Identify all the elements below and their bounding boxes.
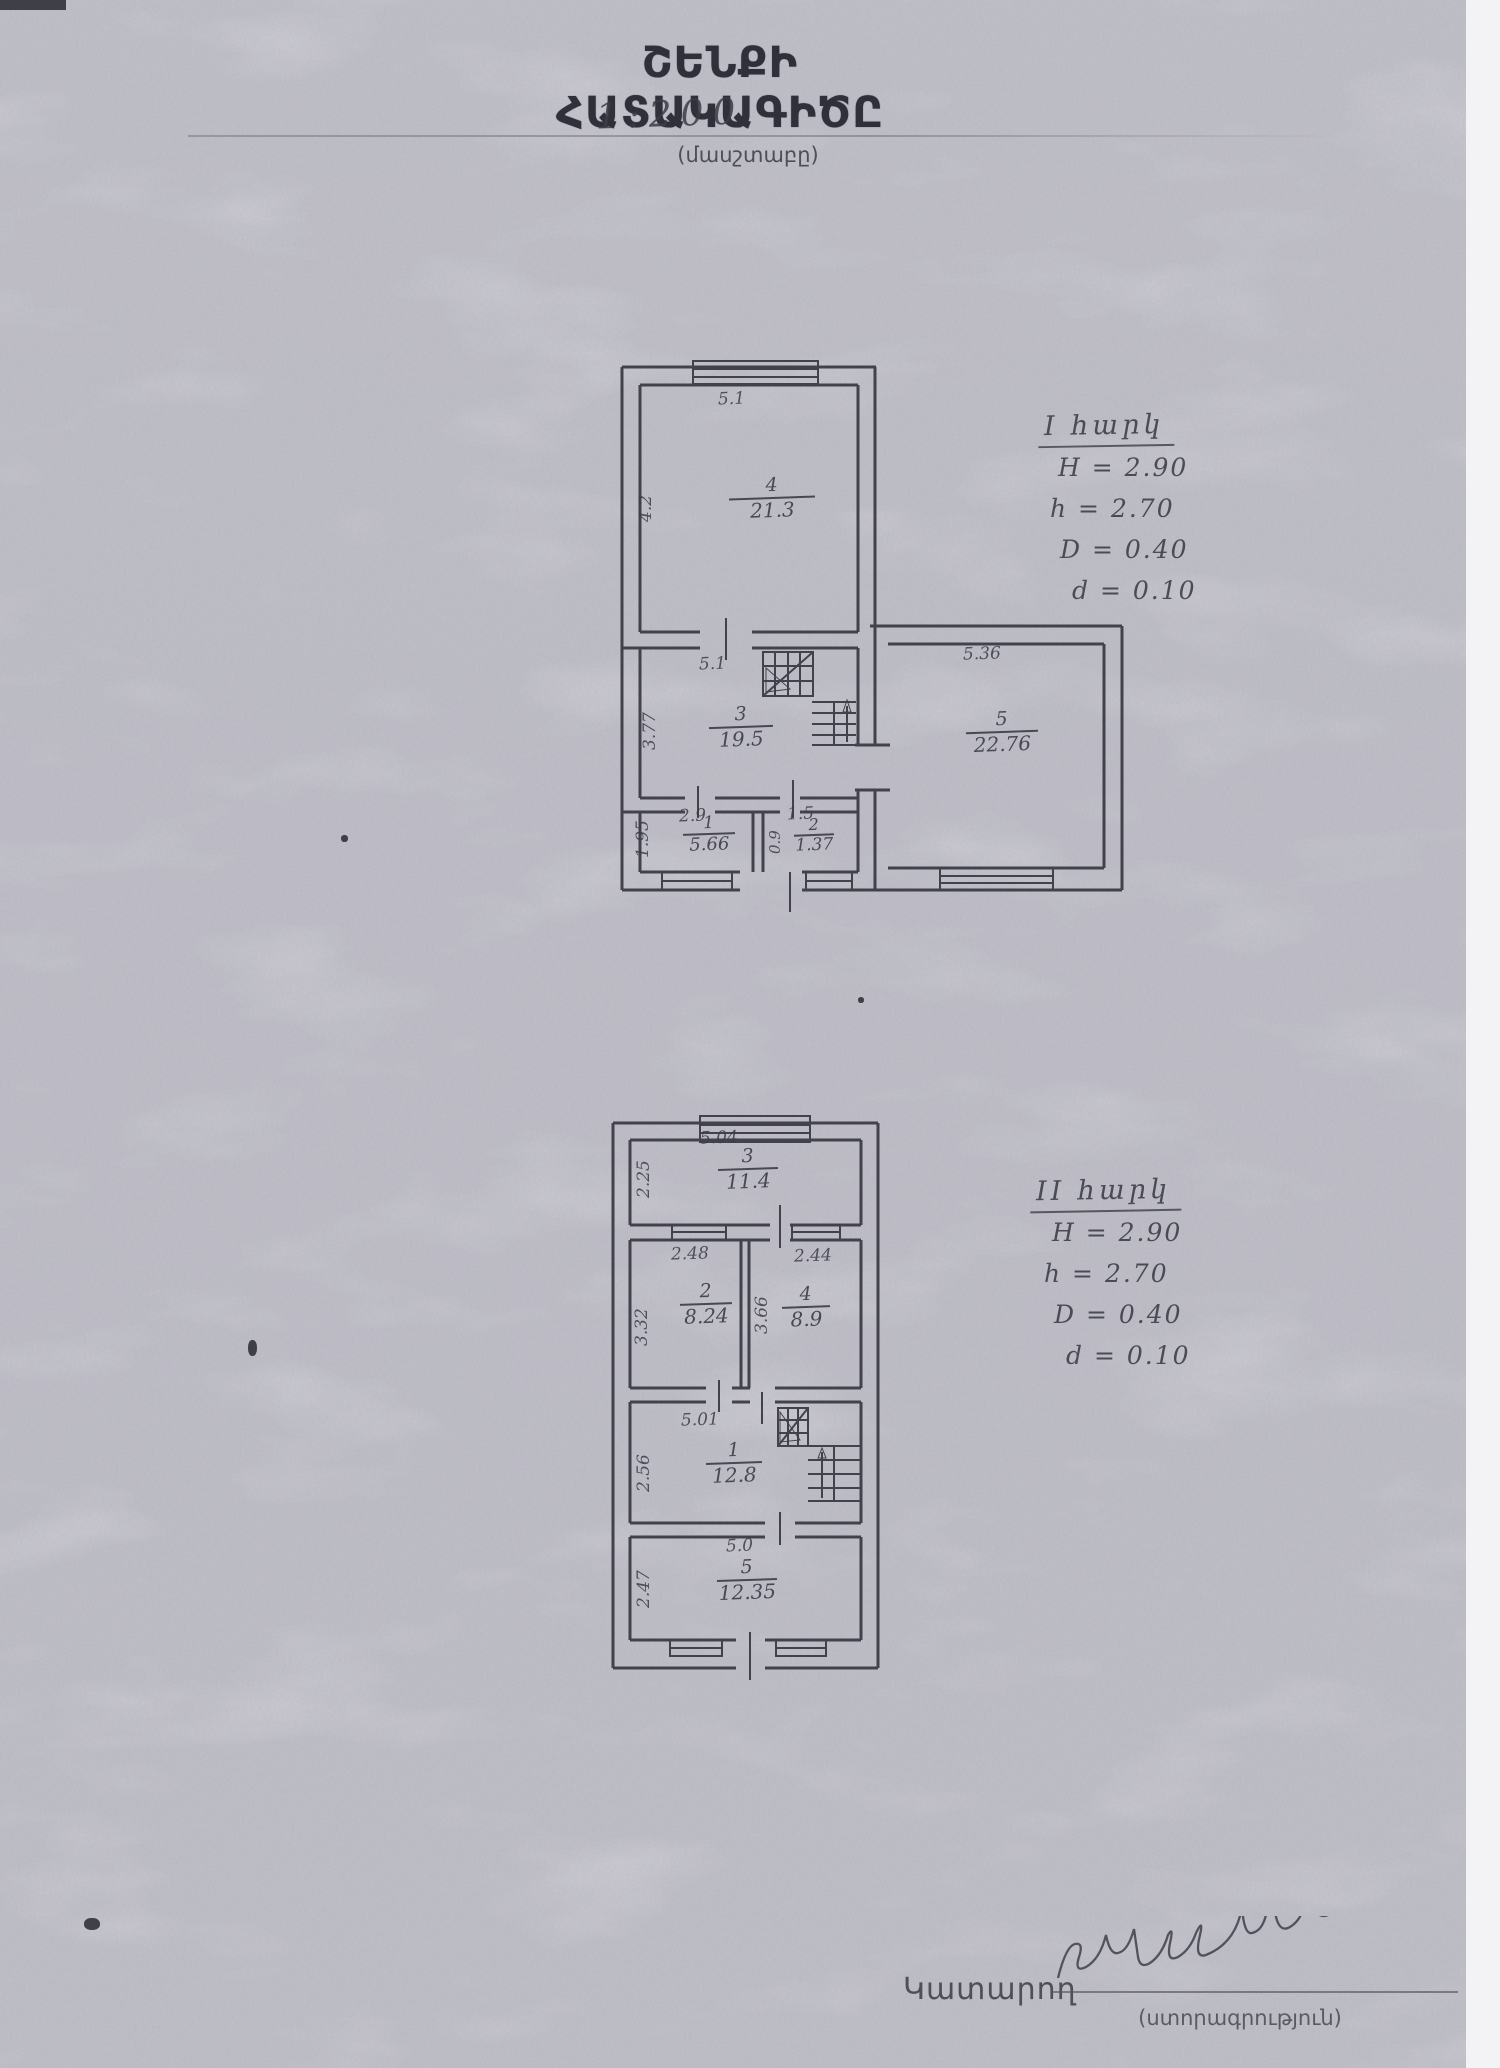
room-area: 8.24 xyxy=(684,1305,729,1328)
floor2-room2-depth-dim: 3.32 xyxy=(632,1308,652,1346)
floor2-param: H = 2.90 xyxy=(1052,1212,1191,1253)
floor2-room3-label: 3 11.4 xyxy=(717,1146,779,1193)
room-area: 12.35 xyxy=(718,1581,776,1604)
room-area: 21.3 xyxy=(750,499,795,522)
signature-line xyxy=(1052,1991,1458,1993)
floor1-stove xyxy=(763,652,813,696)
floor2-stove xyxy=(778,1408,808,1446)
room-area: 5.66 xyxy=(689,835,730,854)
room-number: 1 xyxy=(703,816,714,831)
header-rule xyxy=(188,135,1346,137)
floor1-room1-depth-dim: 1.95 xyxy=(633,820,653,858)
floor1-room2-label: 2 1.37 xyxy=(793,817,834,854)
room-area: 19.5 xyxy=(719,728,764,751)
floor1-param: d = 0.10 xyxy=(1072,570,1197,611)
scale-caption: (մասշտաբը) xyxy=(648,143,848,167)
scanned-floor-plan-page: ՇԵՆՔԻ ՀԱՏԱԿԱԳԻԾԸ 1:200 (մասշտաբը) 5.1 4.… xyxy=(0,0,1500,2068)
floor1-room3-width-dim: 5.1 xyxy=(699,654,727,675)
room-area: 22.76 xyxy=(973,733,1031,756)
floor2-room3-width-dim: 5.04 xyxy=(700,1127,739,1148)
scan-artifact xyxy=(0,0,66,10)
floor1-note: I հարկ H = 2.90 h = 2.70 D = 0.40 d = 0.… xyxy=(1038,410,1197,611)
floor1-room5-width-dim: 5.36 xyxy=(963,643,1002,664)
floor2-room4-width-dim: 2.44 xyxy=(794,1245,833,1266)
floor2-room1-label: 1 12.8 xyxy=(705,1440,763,1487)
floor2-param: D = 0.40 xyxy=(1054,1294,1191,1335)
scan-artifact xyxy=(858,997,864,1003)
room-number: 5 xyxy=(995,710,1008,729)
floor1-heading: I հարկ xyxy=(1038,409,1175,448)
floor2-param: d = 0.10 xyxy=(1066,1335,1191,1376)
room-number: 2 xyxy=(699,1282,712,1301)
floor1-param: D = 0.40 xyxy=(1060,529,1197,570)
signature-caption: (ստորագրություն) xyxy=(1120,2006,1360,2030)
room-number: 4 xyxy=(765,476,778,495)
floor1-room3-label: 3 19.5 xyxy=(708,704,774,751)
room-area: 12.8 xyxy=(712,1464,757,1487)
floor1-room1-label: 1 5.66 xyxy=(682,815,735,855)
scan-right-margin xyxy=(1466,0,1500,2068)
floor2-room5-width-dim: 5.0 xyxy=(726,1536,754,1557)
floor1-room5-label: 5 22.76 xyxy=(965,709,1039,756)
floor2-param: h = 2.70 xyxy=(1044,1253,1191,1294)
floor2-room3-depth-dim: 2.25 xyxy=(634,1160,654,1198)
room-number: 1 xyxy=(727,1441,740,1460)
scan-artifact xyxy=(84,1918,100,1930)
scale-value: 1:200 xyxy=(554,90,785,139)
floor2-stairs xyxy=(808,1446,861,1501)
floor1-room4-label: 4 21.3 xyxy=(728,475,816,523)
signature-scribble xyxy=(1030,1916,1480,2001)
paper-texture xyxy=(0,0,1500,2068)
room-area: 11.4 xyxy=(726,1170,771,1193)
floor1-room4-width-dim: 5.1 xyxy=(718,389,746,410)
scan-artifact xyxy=(341,835,348,842)
floor2-room4-label: 4 8.9 xyxy=(781,1284,831,1331)
room-number: 5 xyxy=(740,1558,753,1577)
floor1-param: h = 2.70 xyxy=(1050,488,1197,529)
floor2-room2-label: 2 8.24 xyxy=(679,1281,733,1328)
floor2-room2-width-dim: 2.48 xyxy=(671,1243,710,1264)
room-number: 3 xyxy=(734,705,747,724)
floor2-room1-width-dim: 5.01 xyxy=(681,1409,720,1430)
floor2-room5-depth-dim: 2.47 xyxy=(634,1570,654,1608)
floor2-room5-label: 5 12.35 xyxy=(716,1557,778,1604)
room-number: 4 xyxy=(799,1285,812,1304)
floor1-room3-depth-dim: 3.77 xyxy=(640,712,660,750)
floor2-heading: II հարկ xyxy=(1030,1174,1182,1214)
floor1-room4-depth-dim: 4.2 xyxy=(636,495,656,522)
room-area: 8.9 xyxy=(790,1308,823,1330)
floor1-param: H = 2.90 xyxy=(1058,447,1197,488)
floor2-note: II հարկ H = 2.90 h = 2.70 D = 0.40 d = 0… xyxy=(1030,1175,1191,1376)
room-area: 1.37 xyxy=(795,836,833,854)
floor1-room2-depth-dim: 0.9 xyxy=(766,830,784,854)
room-number: 3 xyxy=(741,1147,754,1166)
floor2-room4-depth-dim: 3.66 xyxy=(752,1296,772,1334)
room-number: 2 xyxy=(808,818,819,832)
floor1-stairs xyxy=(812,700,856,745)
scan-artifact xyxy=(248,1340,257,1356)
floor2-room1-depth-dim: 2.56 xyxy=(634,1454,654,1492)
